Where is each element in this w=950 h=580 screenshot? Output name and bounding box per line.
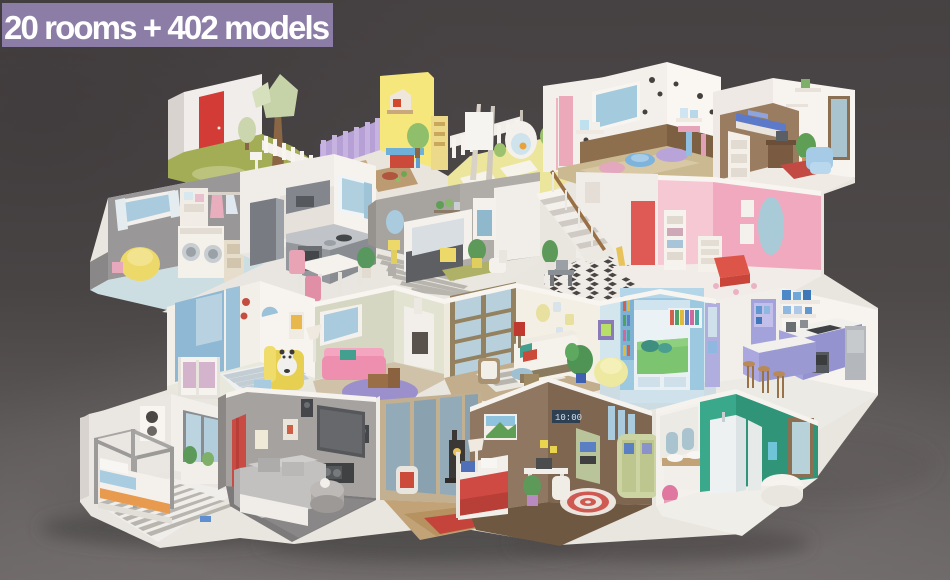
svg-text:20 rooms + 402 models: 20 rooms + 402 models: [4, 9, 329, 46]
svg-text:10:00: 10:00: [555, 413, 582, 423]
